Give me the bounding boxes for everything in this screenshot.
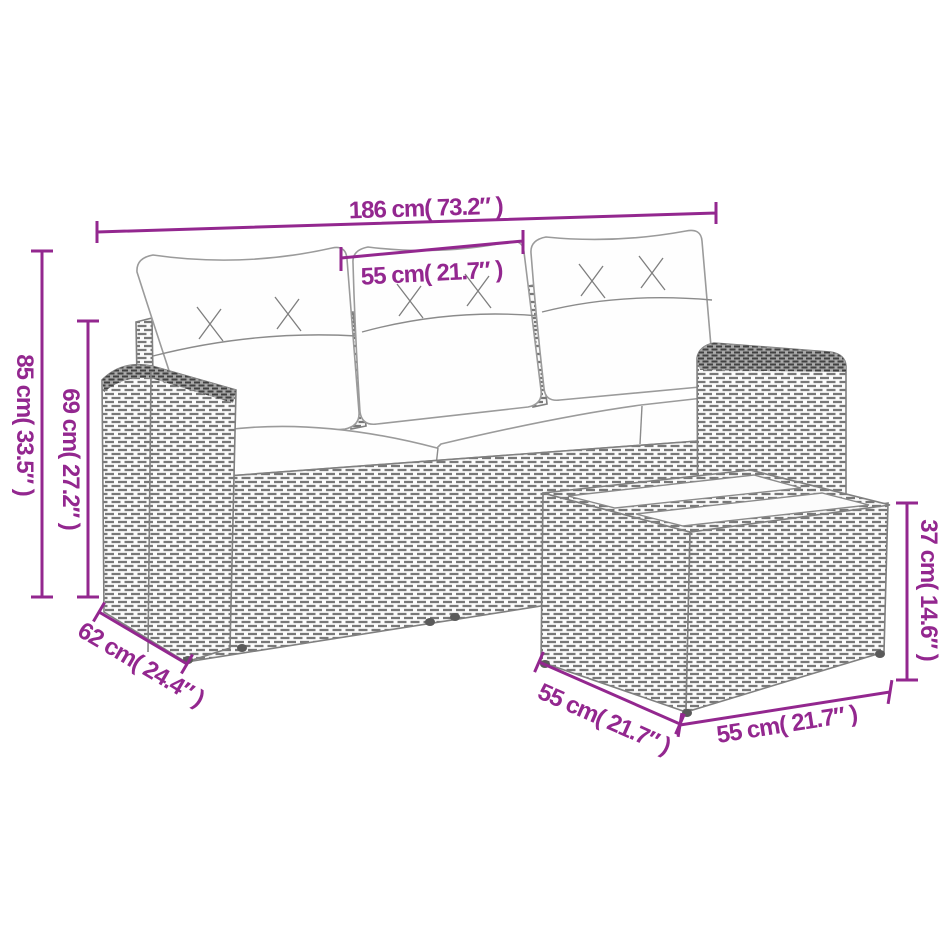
table-foot xyxy=(875,650,885,658)
dimension-label-sofa-total-width: 186 cm( 73.2″ ) xyxy=(348,193,503,225)
left-armrest xyxy=(102,365,236,662)
sofa-foot xyxy=(425,618,435,626)
dimension-sofa-total-width: 186 cm( 73.2″ ) xyxy=(97,193,716,243)
side-table-drawing xyxy=(540,470,890,717)
dimension-sofa-back-height: 69 cm( 27.2″ ) xyxy=(57,321,99,597)
back-cushion-right xyxy=(531,230,713,400)
sofa-foot xyxy=(237,644,247,652)
sofa-foot xyxy=(450,613,460,621)
dimension-label-table-height: 37 cm( 14.6″ ) xyxy=(915,519,942,661)
table-right-face xyxy=(686,503,888,712)
product-dimension-diagram: 186 cm( 73.2″ ) 55 cm( 21.7″ ) 85 cm( 33… xyxy=(0,0,947,947)
dimension-table-height: 37 cm( 14.6″ ) xyxy=(896,503,942,680)
dimension-sofa-total-height: 85 cm( 33.5″ ) xyxy=(11,251,53,597)
dimension-label-sofa-back-height: 69 cm( 27.2″ ) xyxy=(57,388,84,530)
diagram-drawing: 186 cm( 73.2″ ) 55 cm( 21.7″ ) 85 cm( 33… xyxy=(0,0,947,947)
dimension-line xyxy=(896,503,918,680)
dimension-label-sofa-total-height: 85 cm( 33.5″ ) xyxy=(11,354,38,496)
